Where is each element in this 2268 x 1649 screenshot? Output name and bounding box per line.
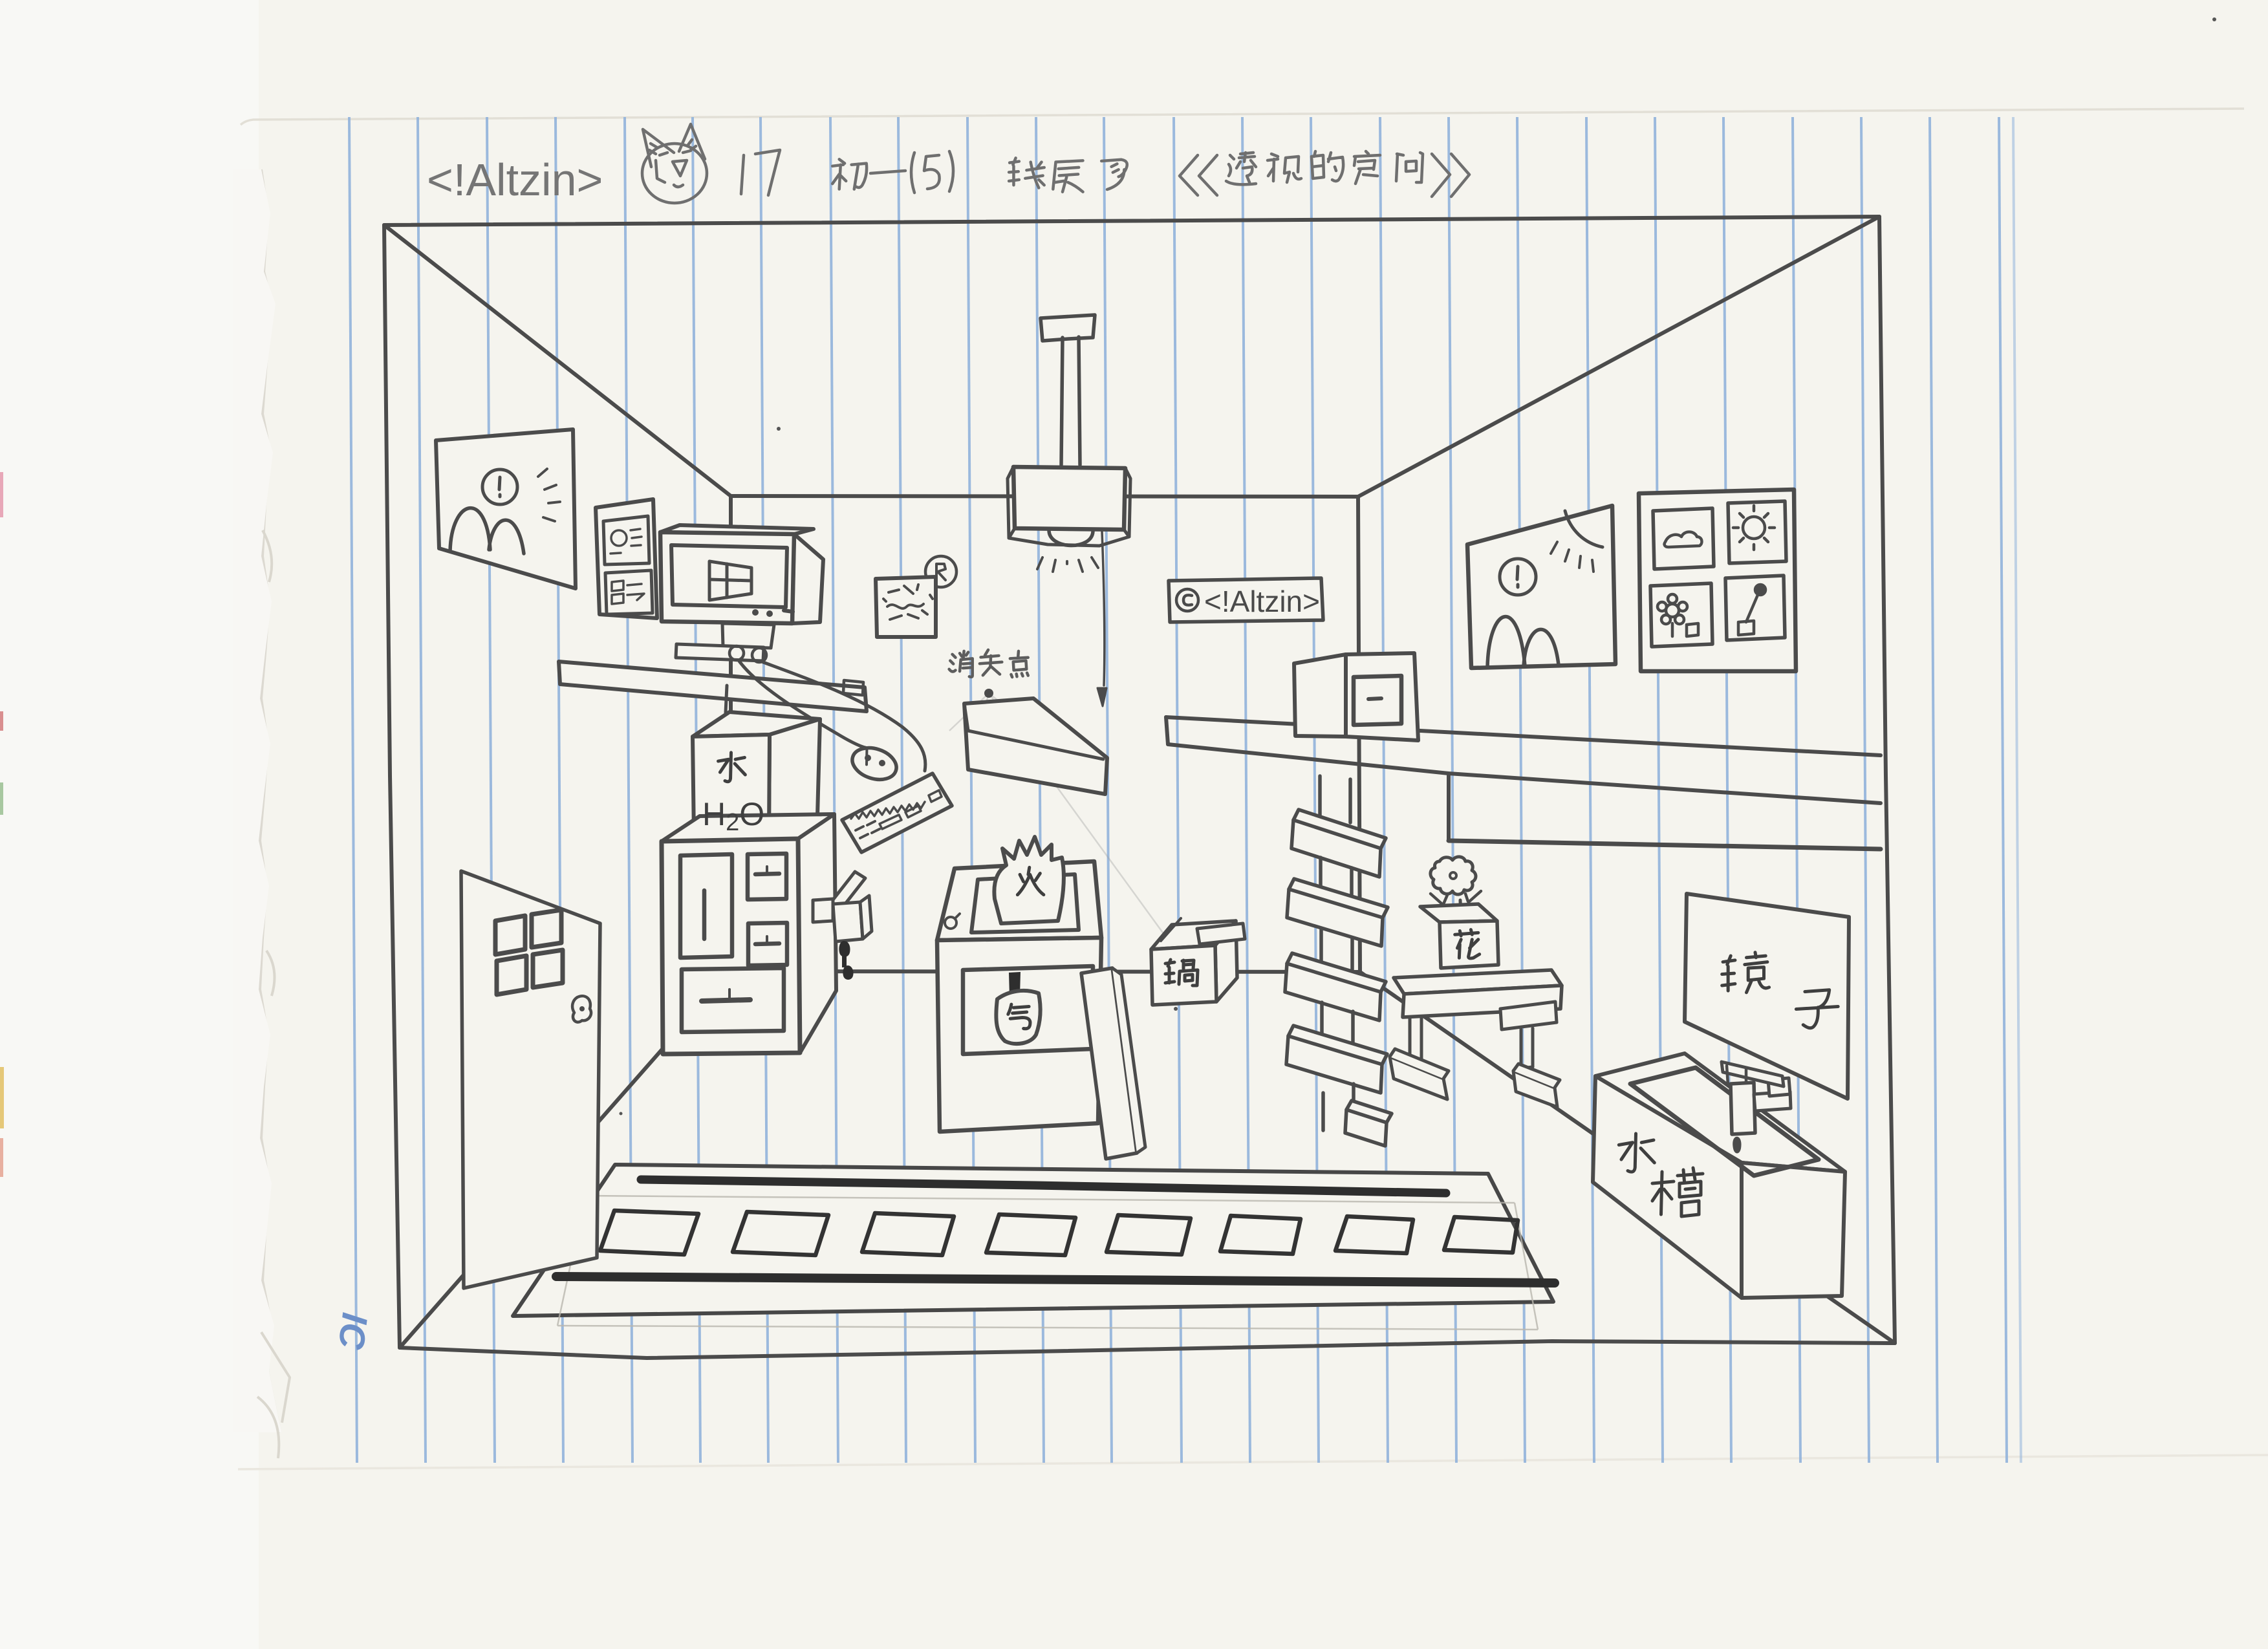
svg-text:<!Altzin>: <!Altzin>	[427, 155, 603, 205]
svg-text:<!Altzin>: <!Altzin>	[1204, 585, 1320, 618]
svg-text:IC: IC	[330, 1311, 376, 1353]
